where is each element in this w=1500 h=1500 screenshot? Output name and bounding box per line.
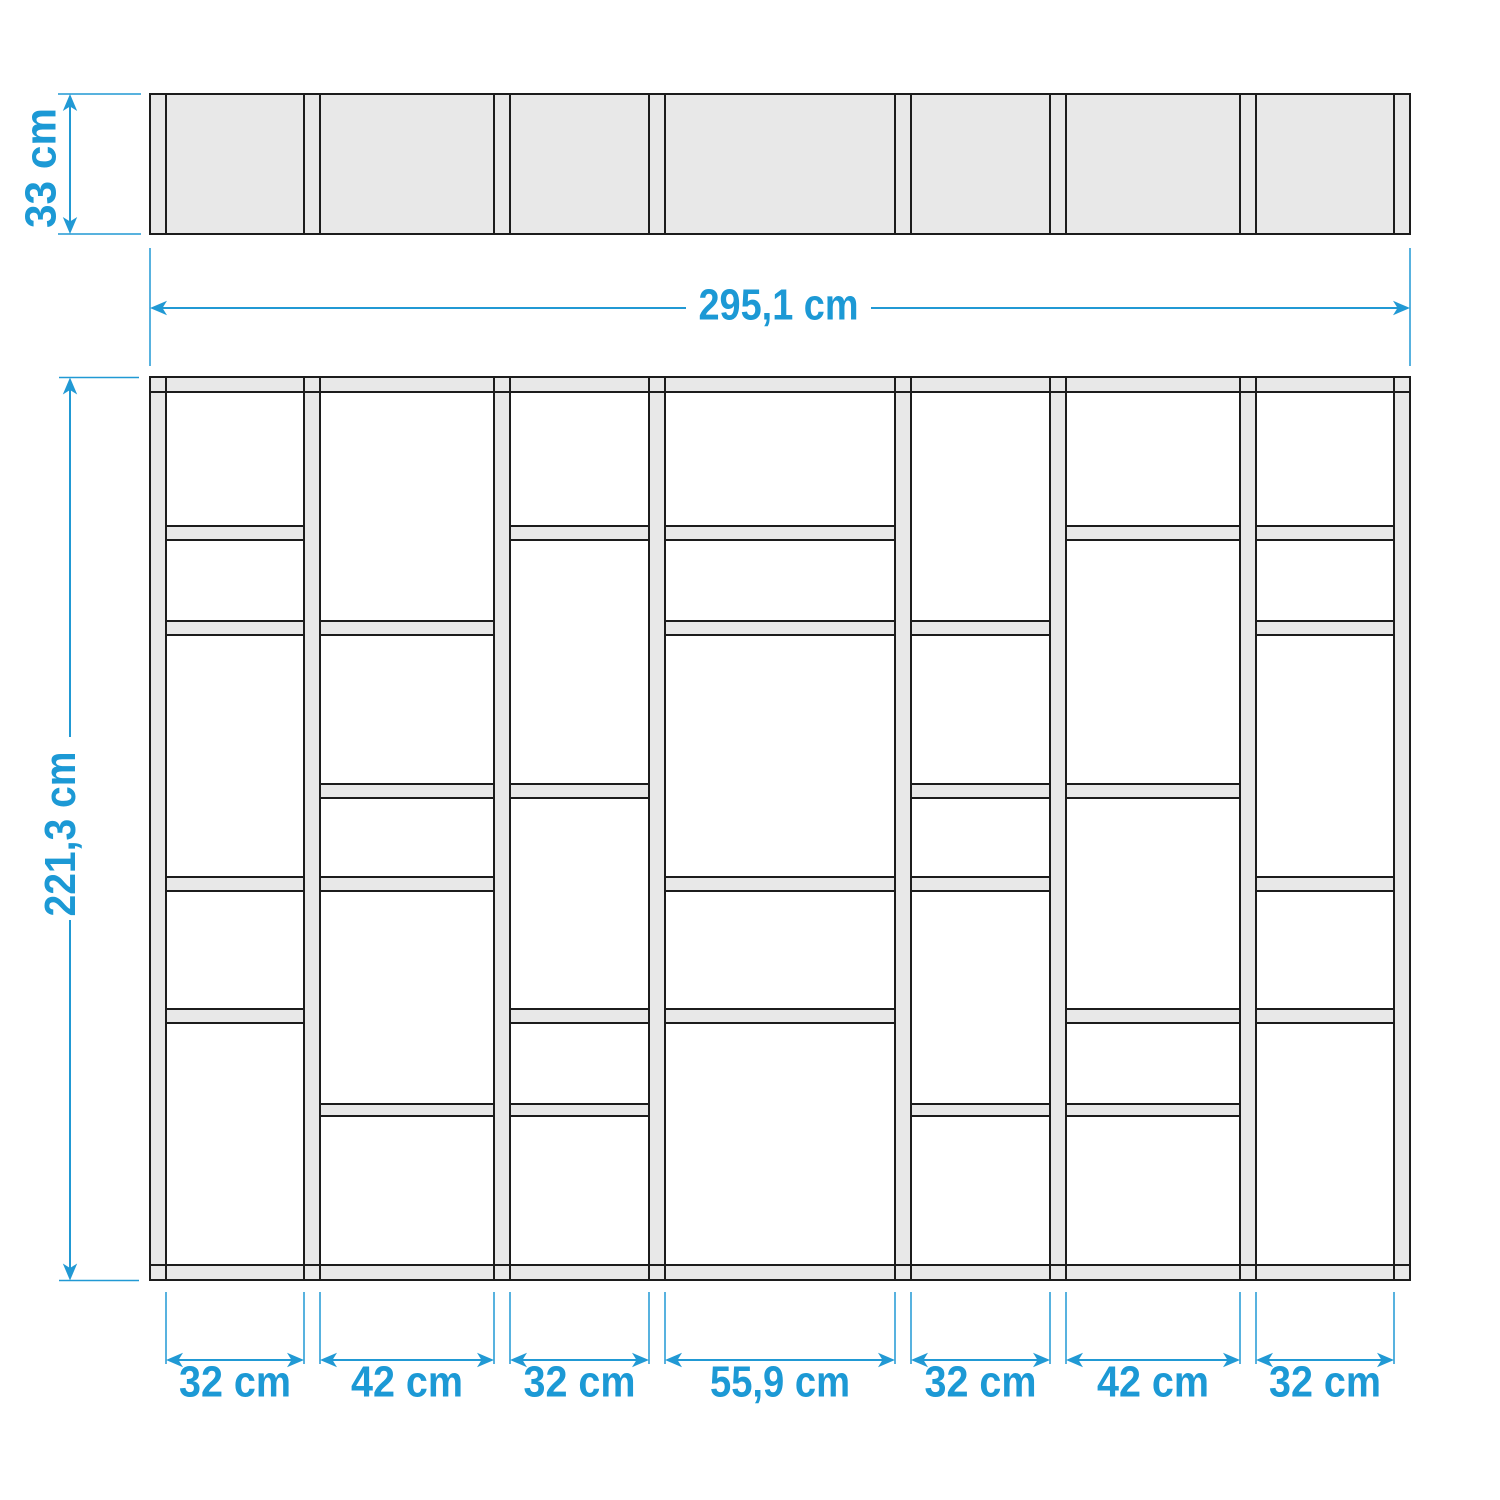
svg-text:32 cm: 32 cm: [524, 1359, 636, 1407]
svg-text:32 cm: 32 cm: [925, 1359, 1037, 1407]
svg-text:33 cm: 33 cm: [18, 108, 66, 228]
svg-text:55,9 cm: 55,9 cm: [710, 1359, 850, 1407]
svg-text:221,3 cm: 221,3 cm: [37, 752, 85, 917]
svg-text:42 cm: 42 cm: [351, 1359, 463, 1407]
svg-text:42 cm: 42 cm: [1097, 1359, 1209, 1407]
svg-text:32 cm: 32 cm: [1269, 1359, 1381, 1407]
svg-text:295,1 cm: 295,1 cm: [699, 282, 859, 330]
svg-text:32 cm: 32 cm: [179, 1359, 291, 1407]
